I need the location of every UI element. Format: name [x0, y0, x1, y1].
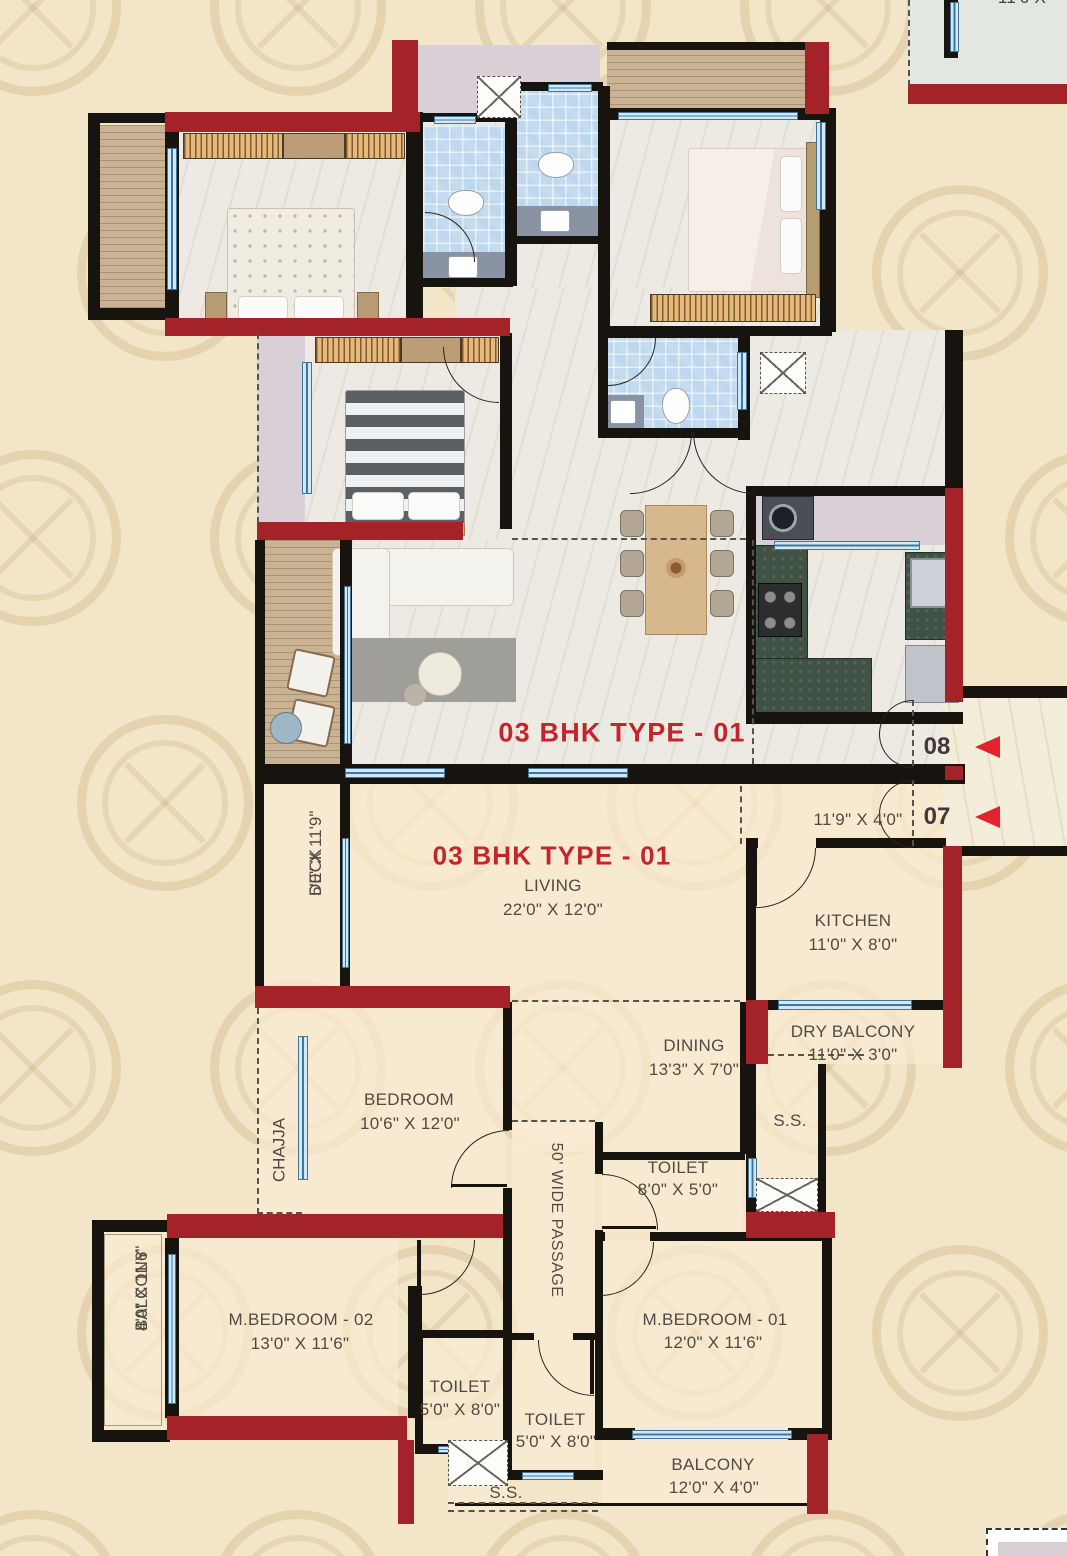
wall-segment — [88, 308, 170, 320]
ss-lower-label: S.S. — [489, 1483, 522, 1503]
wall-segment — [255, 784, 264, 986]
window — [345, 768, 445, 778]
wall-segment — [88, 113, 100, 318]
toilet-wc — [662, 388, 690, 424]
shaft-box — [756, 1178, 818, 1212]
wall-segment — [598, 330, 750, 338]
master-bedroom-1-label: M.BEDROOM - 01 — [643, 1310, 788, 1330]
window — [778, 1000, 912, 1010]
background-motif-icon — [740, 1510, 916, 1556]
dashed-line — [448, 1510, 598, 1512]
floor-deck-wood — [93, 125, 167, 313]
stove — [758, 583, 802, 637]
partial-plan-box-fill — [998, 1542, 1067, 1556]
background-motif-icon — [872, 1245, 1048, 1421]
master-bedroom-2-label: M.BEDROOM - 02 — [229, 1310, 374, 1330]
kitchen-counter — [752, 658, 872, 713]
floor-adjacent-unit — [908, 0, 1067, 86]
entry-arrow-icon-07 — [975, 806, 1000, 828]
room-floor — [262, 784, 745, 1000]
master-bedroom-1-dim: 12'0" X 11'6" — [664, 1333, 763, 1353]
wall-segment — [607, 42, 807, 50]
wall-segment — [92, 1220, 104, 1442]
pillow — [294, 296, 344, 320]
wall-red-segment — [165, 318, 510, 336]
shaft-box — [448, 1440, 508, 1486]
window — [344, 586, 351, 744]
wall-segment — [512, 1333, 534, 1340]
pillow — [780, 218, 802, 274]
wall-red-segment — [398, 1440, 414, 1524]
wall-segment — [415, 1330, 505, 1338]
dry-balcony-dim: 11'0" X 3'0" — [809, 1045, 898, 1065]
door-leaf — [451, 1184, 507, 1187]
dashed-line — [740, 786, 742, 844]
window — [950, 2, 959, 52]
deck-chair — [286, 648, 336, 698]
wardrobe-panel — [283, 133, 345, 159]
wardrobe — [315, 337, 401, 363]
entry-arrow-icon-08 — [975, 736, 1000, 758]
floor-deck-wood — [607, 48, 807, 112]
wall-segment — [746, 486, 963, 496]
door-leaf — [753, 848, 757, 906]
wall-segment — [746, 486, 756, 722]
background-motif-icon — [0, 0, 121, 96]
centerpiece-bowl — [666, 558, 686, 578]
bedroom-dim: 10'6" X 12'0" — [360, 1114, 460, 1134]
window — [298, 1036, 308, 1180]
door-leaf — [590, 1340, 594, 1394]
washing-machine — [762, 496, 814, 540]
wall-red-segment — [945, 766, 963, 780]
background-motif-icon — [210, 1510, 386, 1556]
dining-chair — [710, 550, 734, 577]
shaft-box — [760, 352, 806, 394]
bedside-table — [205, 292, 227, 320]
wall-red-segment — [943, 846, 962, 1068]
window — [816, 122, 826, 210]
window — [342, 838, 349, 968]
pillow — [352, 492, 404, 520]
adjacent-unit-dim-partial: 11'6 X — [998, 0, 1046, 8]
wall-segment — [822, 1232, 832, 1438]
window — [632, 1430, 792, 1439]
wall-red-segment — [167, 1214, 503, 1238]
wardrobe — [345, 133, 405, 159]
window — [168, 1254, 176, 1404]
wall-segment — [746, 838, 758, 848]
wall-segment — [408, 1286, 422, 1418]
background-motif-icon — [210, 0, 386, 96]
toilet-wc — [448, 190, 484, 216]
dining-chair — [620, 590, 644, 617]
window — [434, 116, 476, 124]
dashed-line — [908, 0, 910, 86]
background-motif-icon — [1005, 980, 1067, 1156]
wardrobe — [650, 294, 816, 322]
chajja-label: CHAJJA — [268, 1118, 293, 1182]
wall-segment — [511, 236, 603, 244]
dining-chair — [710, 510, 734, 537]
deck-dim: 5'0" X 11'9" — [304, 811, 329, 896]
toilet-wc — [538, 152, 574, 178]
wall-segment — [503, 1188, 512, 1340]
ss-upper-label: S.S. — [773, 1111, 806, 1131]
window — [618, 112, 798, 120]
wall-red-segment — [945, 488, 963, 702]
wall-segment — [945, 330, 963, 488]
dashed-line — [257, 1008, 259, 1214]
dining-label: DINING — [663, 1036, 724, 1056]
dashed-line — [752, 540, 754, 764]
window — [522, 1472, 574, 1480]
wall-segment — [500, 333, 512, 529]
room-floor — [257, 1008, 302, 1214]
bedroom-label: BEDROOM — [364, 1090, 454, 1110]
side-table — [404, 684, 426, 706]
floor-utility — [257, 333, 305, 523]
wash-basin — [610, 400, 636, 424]
entrance-passage-dim: 11'9" X 4'0" — [814, 810, 903, 830]
deck-table — [270, 712, 302, 744]
wall-segment — [818, 1064, 826, 1214]
wall-red-segment — [746, 1000, 768, 1064]
bedside-table — [357, 292, 379, 320]
wall-segment — [962, 686, 1067, 698]
wall-red-segment — [255, 986, 510, 1008]
balcony-side-dim: 4'0" X 11'6" — [130, 1246, 155, 1331]
dashed-line — [257, 333, 259, 523]
balcony-bottom-label: BALCONY — [671, 1455, 754, 1475]
wall-segment — [910, 1000, 943, 1010]
background-motif-icon — [0, 980, 121, 1156]
door-leaf — [602, 1226, 656, 1229]
window — [774, 541, 920, 550]
dining-chair — [620, 550, 644, 577]
passage-label: 50' WIDE PASSAGE — [547, 1143, 565, 1298]
pillow — [238, 296, 288, 320]
wall-segment — [92, 1430, 170, 1442]
kitchen-label: KITCHEN — [815, 911, 892, 931]
wall-segment — [88, 113, 170, 123]
toilet-common-label: TOILET — [647, 1158, 708, 1178]
background-motif-icon — [0, 1510, 121, 1556]
wall-segment — [92, 1220, 170, 1232]
living-dim: 22'0" X 12'0" — [503, 900, 603, 920]
dashed-line — [448, 1502, 598, 1504]
window — [737, 352, 747, 410]
wall-segment — [746, 712, 963, 724]
master-bedroom-2-dim: 13'0" X 11'6" — [251, 1334, 350, 1354]
shaft-box — [477, 76, 521, 118]
background-motif-icon — [475, 1510, 651, 1556]
background-motif-icon — [1005, 450, 1067, 626]
wash-basin — [540, 210, 570, 232]
dining-dim: 13'3" X 7'0" — [649, 1060, 739, 1080]
flat-number-07: 07 — [924, 803, 951, 831]
kitchen-dim: 11'0" X 8'0" — [809, 935, 898, 955]
wardrobe — [183, 133, 283, 159]
living-label: LIVING — [524, 876, 582, 896]
pillow — [408, 492, 460, 520]
dining-chair — [710, 590, 734, 617]
window — [528, 768, 628, 778]
plan-shapes-layer — [0, 0, 1067, 1556]
wall-red-segment — [908, 84, 1067, 104]
window — [302, 362, 312, 494]
wall-red-segment — [392, 40, 418, 114]
wall-segment — [595, 1428, 635, 1440]
wall-segment — [962, 846, 1067, 856]
wall-segment — [573, 1333, 600, 1340]
dry-balcony-label: DRY BALCONY — [791, 1022, 916, 1042]
balcony-bottom-dim: 12'0" X 4'0" — [669, 1478, 759, 1498]
wall-segment — [595, 1122, 603, 1152]
wall-red-segment — [746, 1212, 835, 1238]
toilet-m2-label: TOILET — [429, 1377, 490, 1397]
toilet-m1-label: TOILET — [524, 1410, 585, 1430]
background-motif-icon — [0, 450, 121, 626]
wall-red-segment — [165, 112, 420, 132]
dashed-line — [257, 1212, 302, 1214]
rendered-plan-title: 03 BHK TYPE - 01 — [498, 718, 745, 749]
wall-red-segment — [167, 1416, 407, 1440]
door-leaf — [417, 1240, 421, 1295]
wall-segment — [255, 540, 265, 766]
wall-segment — [595, 1152, 603, 1174]
dashed-line — [512, 538, 746, 540]
wall-red-segment — [807, 1434, 828, 1514]
wall-segment — [816, 838, 946, 848]
wall-red-segment — [257, 522, 463, 540]
wall-segment — [406, 112, 423, 318]
toilet-common-dim: 8'0" X 5'0" — [638, 1180, 718, 1200]
wall-segment — [598, 332, 608, 438]
window — [548, 84, 592, 92]
toilet-m1-dim: 5'0" X 8'0" — [516, 1432, 596, 1452]
dashed-line — [512, 1120, 595, 1122]
door-leaf — [597, 1242, 601, 1296]
wall-segment — [598, 86, 610, 330]
wall-segment — [406, 278, 513, 287]
dining-chair — [620, 510, 644, 537]
schematic-plan-title: 03 BHK TYPE - 01 — [433, 841, 672, 872]
background-motif-icon — [77, 715, 253, 891]
dashed-line — [512, 1000, 740, 1002]
floor-plan-canvas: 03 BHK TYPE - 01 11'6 X 08 07 03 BHK TYP… — [0, 0, 1067, 1556]
wall-segment — [503, 1002, 512, 1130]
flat-number-08: 08 — [924, 733, 951, 761]
pillow — [780, 156, 802, 212]
wall-red-segment — [805, 42, 829, 114]
toilet-m2-dim: 5'0" X 8'0" — [420, 1400, 500, 1420]
window — [167, 148, 177, 290]
